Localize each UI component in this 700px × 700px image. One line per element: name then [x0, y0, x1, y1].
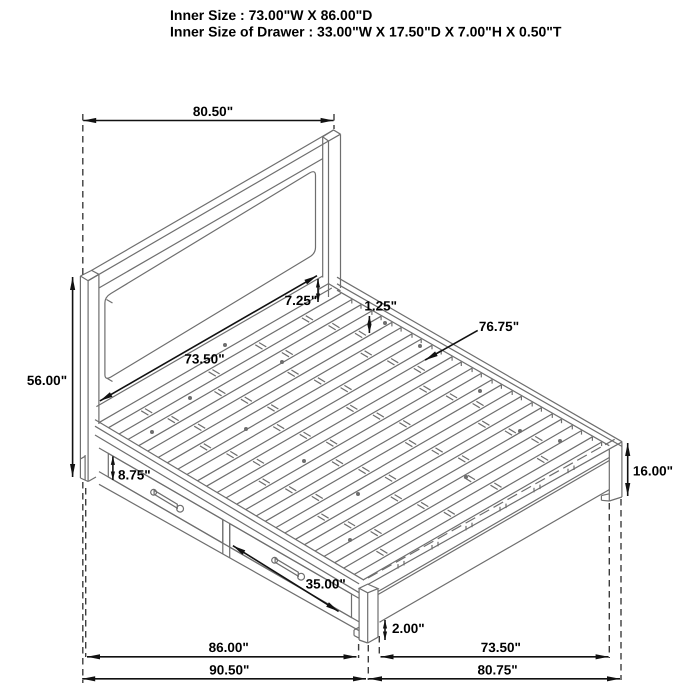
- svg-text:Inner Size : 73.00"W X 86.00"D: Inner Size : 73.00"W X 86.00"D: [170, 7, 372, 23]
- svg-text:80.75": 80.75": [478, 663, 518, 678]
- svg-text:1.25": 1.25": [364, 299, 397, 314]
- svg-text:80.50": 80.50": [193, 104, 233, 119]
- svg-text:7.25": 7.25": [285, 293, 318, 308]
- svg-text:73.50": 73.50": [481, 640, 521, 655]
- svg-text:56.00": 56.00": [27, 373, 67, 388]
- svg-text:35.00": 35.00": [306, 577, 346, 592]
- svg-text:76.75": 76.75": [479, 319, 519, 334]
- svg-text:86.00": 86.00": [209, 640, 249, 655]
- svg-text:2.00": 2.00": [392, 621, 425, 636]
- svg-text:73.50": 73.50": [184, 352, 224, 367]
- svg-text:90.50": 90.50": [209, 663, 249, 678]
- svg-text:Inner Size of Drawer : 33.00"W: Inner Size of Drawer : 33.00"W X 17.50"D…: [170, 24, 562, 40]
- svg-text:8.75": 8.75": [118, 468, 151, 483]
- svg-text:16.00": 16.00": [633, 464, 673, 479]
